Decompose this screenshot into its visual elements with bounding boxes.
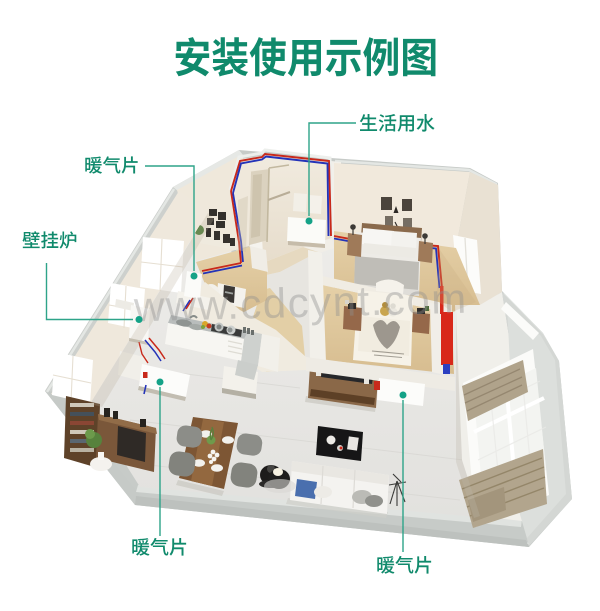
svg-text:www.cdcynt.com: www.cdcynt.com [132,275,468,331]
